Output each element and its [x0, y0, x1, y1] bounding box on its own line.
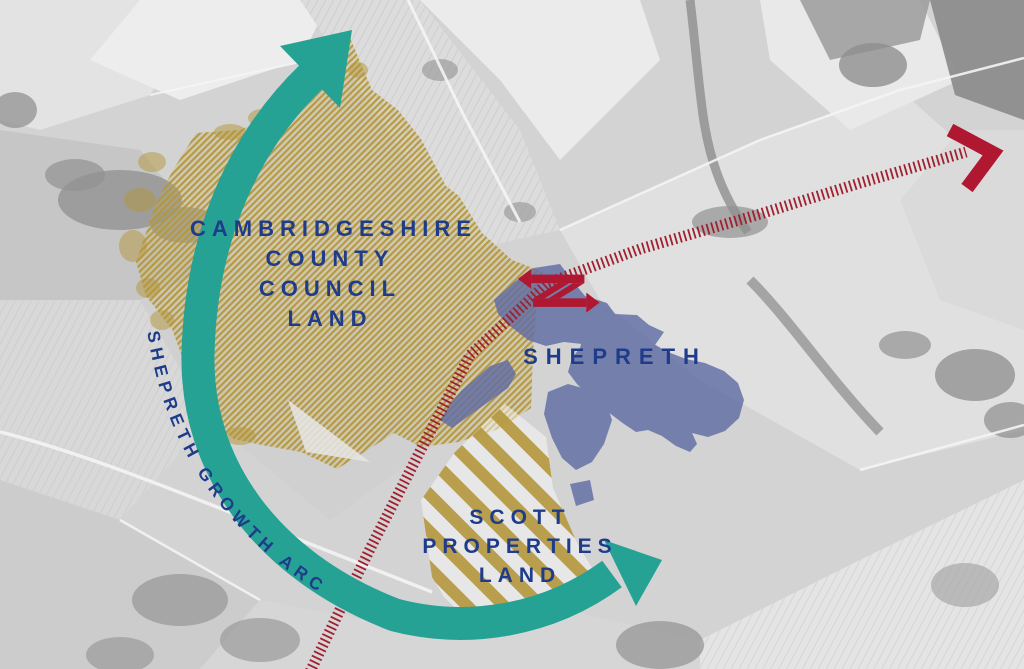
masterplan-map: SHEPRETH GROWTH ARC CAMBRIDGESHIRE COUNT… [0, 0, 1024, 669]
scott-land-label: SCOTT PROPERTIES LAND [390, 503, 650, 590]
shepreth-label: SHEPRETH [520, 344, 710, 370]
ccc-land-label: CAMBRIDGESHIRE COUNTY COUNCIL LAND [190, 214, 470, 334]
